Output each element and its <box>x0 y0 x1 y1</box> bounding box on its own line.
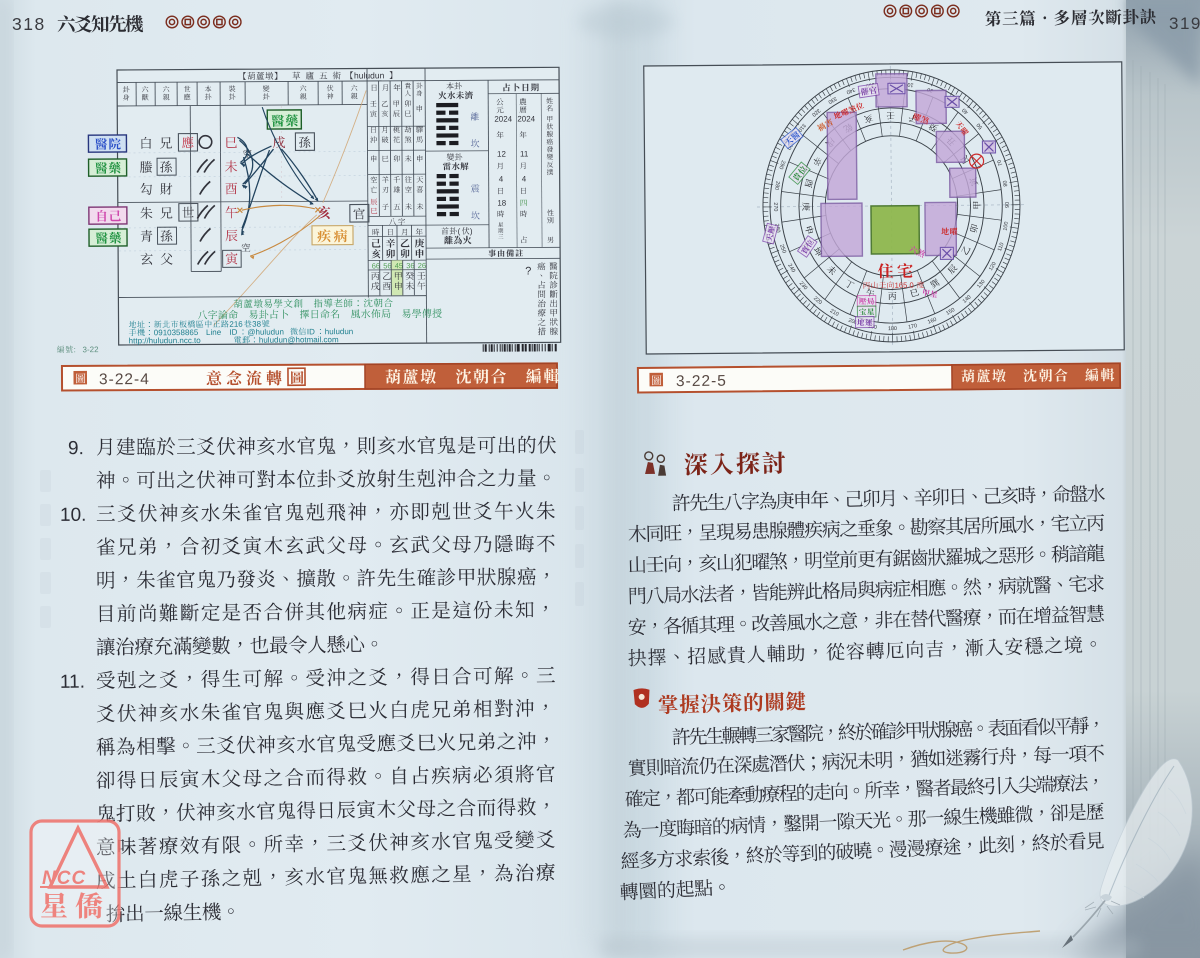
svg-text:165.0: 165.0 <box>895 281 914 290</box>
svg-text:318: 318 <box>12 14 46 34</box>
svg-text:3-22: 3-22 <box>83 345 100 354</box>
svg-text:): ) <box>470 227 473 236</box>
svg-text:ID: ID <box>307 327 315 336</box>
svg-text:?: ? <box>525 265 531 277</box>
svg-text:2024: 2024 <box>494 115 512 124</box>
svg-text:10: 10 <box>907 81 914 88</box>
svg-text:18: 18 <box>497 199 507 208</box>
svg-text:huludun: huludun <box>325 327 354 336</box>
svg-text:319: 319 <box>1169 14 1200 33</box>
svg-text:2024: 2024 <box>517 114 535 123</box>
svg-text:ID: ID <box>229 328 237 337</box>
svg-text:26: 26 <box>418 261 426 270</box>
svg-text:huludun: huludun <box>354 70 385 80</box>
svg-text:0910358865: 0910358865 <box>154 328 199 337</box>
svg-text:10.: 10. <box>60 505 87 526</box>
svg-text:11.: 11. <box>60 672 85 693</box>
svg-text:12: 12 <box>497 150 507 159</box>
svg-text:216: 216 <box>229 320 243 329</box>
svg-text:56: 56 <box>383 261 391 270</box>
svg-text:3-22-4: 3-22-4 <box>99 371 150 388</box>
svg-text::: : <box>74 345 76 354</box>
svg-text:38: 38 <box>252 320 262 329</box>
svg-text:80: 80 <box>1002 180 1009 187</box>
svg-text:9.: 9. <box>68 438 84 459</box>
svg-text:180: 180 <box>888 326 897 332</box>
svg-text:http://huludun.ncc.to: http://huludun.ncc.to <box>129 336 202 345</box>
svg-text:huludun@hotmail.com: huludun@hotmail.com <box>259 335 339 344</box>
svg-text:66: 66 <box>372 261 380 270</box>
svg-text:11: 11 <box>520 149 529 158</box>
svg-text:36: 36 <box>406 261 414 270</box>
svg-text:NCC: NCC <box>42 868 86 889</box>
svg-text:3-22-5: 3-22-5 <box>676 373 727 390</box>
svg-text:Line: Line <box>206 328 222 337</box>
svg-text:45: 45 <box>395 261 403 270</box>
svg-text:90: 90 <box>1005 202 1011 208</box>
svg-text:@huludun: @huludun <box>247 327 284 336</box>
svg-text:4: 4 <box>499 175 504 184</box>
svg-text:(: ( <box>458 227 461 236</box>
svg-text:270: 270 <box>772 202 778 211</box>
svg-text:4: 4 <box>522 174 527 183</box>
